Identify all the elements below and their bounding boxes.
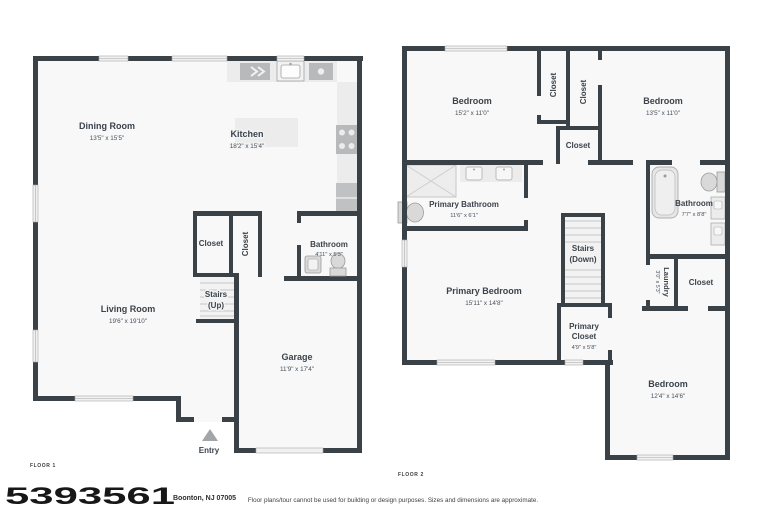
garage-door — [256, 448, 323, 453]
floor1-closet2-label: Closet — [241, 231, 250, 256]
dishwasher-icon — [240, 63, 270, 80]
kitchen-sink-icon — [277, 61, 304, 81]
range-icon — [309, 63, 333, 80]
bathroom2-toilet-icon — [701, 172, 725, 192]
floor1-bathroom-sink-icon — [305, 256, 321, 273]
floor1-stairs-sub: (Up) — [208, 301, 224, 310]
floor2-bedroom3-label: Bedroom — [648, 379, 688, 389]
floor1-living-room-dims: 19'6" x 19'10" — [109, 318, 147, 325]
floor2-primary-bathroom-label: Primary Bathroom — [429, 200, 499, 209]
floor2-caption: FLOOR 2 — [398, 472, 424, 478]
floor2-closet-b-label: Closet — [579, 79, 588, 104]
floor2-bathroom-label: Bathroom — [675, 199, 713, 208]
floor2-bedroom1-dims: 15'2" x 11'0" — [455, 110, 489, 117]
floor2-bedroom2-label: Bedroom — [643, 96, 683, 106]
bathtub-icon — [652, 167, 678, 218]
floor2-bedroom1-label: Bedroom — [452, 96, 492, 106]
floor2-laundry-label-group: Laundry 3'0" x 5'3" — [654, 267, 671, 297]
floor2-bathroom-dims: 7'7" x 8'8" — [682, 212, 707, 218]
cooktop-icon — [336, 125, 357, 154]
floor-plan-svg: Dining Room 13'5" x 15'5" Kitchen 18'2" … — [0, 0, 768, 512]
floor1-kitchen-dims: 18'2" x 15'4" — [230, 143, 265, 150]
floor2-closet-r-label: Closet — [689, 278, 714, 287]
disclaimer-text: Floor plans/tour cannot be used for buil… — [248, 497, 538, 504]
floor1-bathroom-label: Bathroom — [310, 240, 348, 249]
floor2-primary-bathroom-dims: 11'6" x 6'1" — [450, 213, 478, 219]
floor2-plan: Bedroom 15'2" x 11'0" Closet Closet Bedr… — [398, 46, 730, 478]
floor2-stairs-sub: (Down) — [569, 255, 596, 264]
mls-watermark: 5393561 — [5, 483, 175, 510]
floor2-bedroom2-dims: 13'5" x 11'0" — [646, 110, 680, 117]
floor1-bathroom-dims: 4'11" x 5'3" — [315, 252, 343, 258]
floor-plan-page: Dining Room 13'5" x 15'5" Kitchen 18'2" … — [0, 0, 768, 512]
floor2-primary-bedroom-dims: 15'11" x 14'8" — [465, 300, 503, 307]
floor2-laundry-label: Laundry — [662, 267, 671, 297]
floor1-entry-label: Entry — [199, 446, 220, 455]
primary-toilet-icon — [398, 202, 424, 223]
floor2-closet-mid-label: Closet — [566, 141, 591, 150]
footer: 5393561 Boonton, NJ 07005 Floor plans/to… — [5, 483, 538, 510]
refrigerator-icon — [336, 183, 357, 213]
shower-icon — [406, 165, 456, 197]
entry-arrow-icon — [202, 429, 218, 441]
floor1-kitchen-label: Kitchen — [230, 129, 263, 139]
floor1-dining-room-dims: 13'5" x 15'5" — [90, 135, 125, 142]
floor2-primary-bedroom-label: Primary Bedroom — [446, 286, 522, 296]
floor2-bedroom3-dims: 12'4" x 14'6" — [651, 393, 686, 400]
floor1-stairs-label: Stairs — [205, 290, 228, 299]
floor1-living-room-label: Living Room — [101, 304, 156, 314]
floor1-dining-room-label: Dining Room — [79, 121, 135, 131]
floor1-background — [33, 57, 362, 453]
floor1-plan: Dining Room 13'5" x 15'5" Kitchen 18'2" … — [30, 56, 363, 469]
floor2-stairs-label: Stairs — [572, 244, 595, 253]
floor2-closet-a-label: Closet — [549, 72, 558, 97]
double-vanity-icon — [460, 165, 522, 182]
floor1-closet1-label: Closet — [199, 239, 224, 248]
floor2-primary-closet-label2: Closet — [572, 332, 597, 341]
address-text: Boonton, NJ 07005 — [173, 495, 236, 502]
floor1-garage-label: Garage — [281, 352, 312, 362]
floor2-laundry-dims: 3'0" x 5'3" — [654, 270, 660, 293]
floor1-caption: FLOOR 1 — [30, 463, 56, 469]
floor1-garage-dims: 11'9" x 17'4" — [280, 366, 314, 373]
floor2-primary-closet-label1: Primary — [569, 322, 599, 331]
floor2-primary-closet-dims: 4'9" x 5'8" — [572, 345, 597, 351]
